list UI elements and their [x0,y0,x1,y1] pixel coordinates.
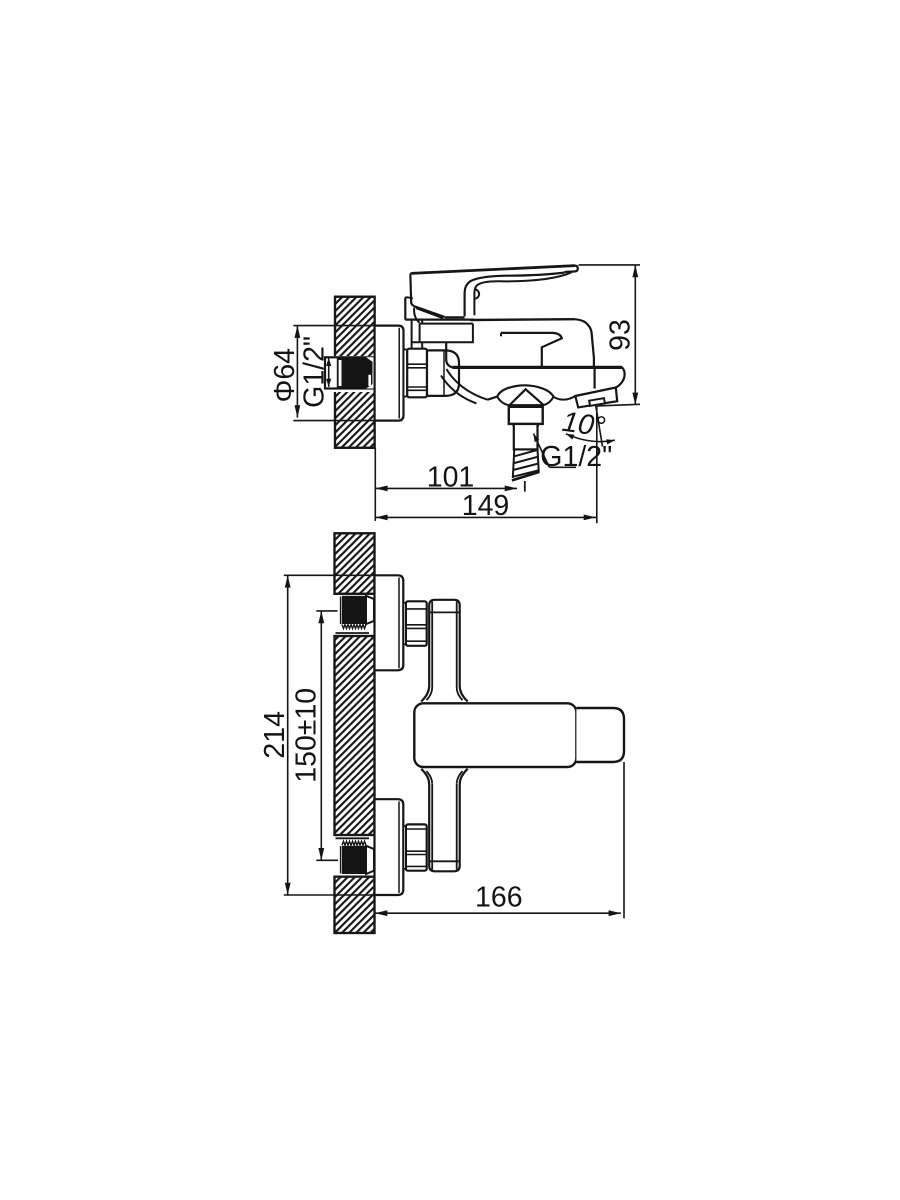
svg-text:G1/2": G1/2" [299,336,331,408]
svg-text:G1/2": G1/2" [540,441,612,473]
svg-text:214: 214 [259,711,291,759]
svg-text:Φ64: Φ64 [269,348,301,403]
svg-text:93: 93 [605,319,637,351]
svg-text:10°: 10° [560,406,607,444]
svg-text:101: 101 [427,461,475,493]
svg-text:150±10: 150±10 [291,688,323,783]
svg-text:166: 166 [475,882,523,914]
svg-text:149: 149 [462,490,510,522]
